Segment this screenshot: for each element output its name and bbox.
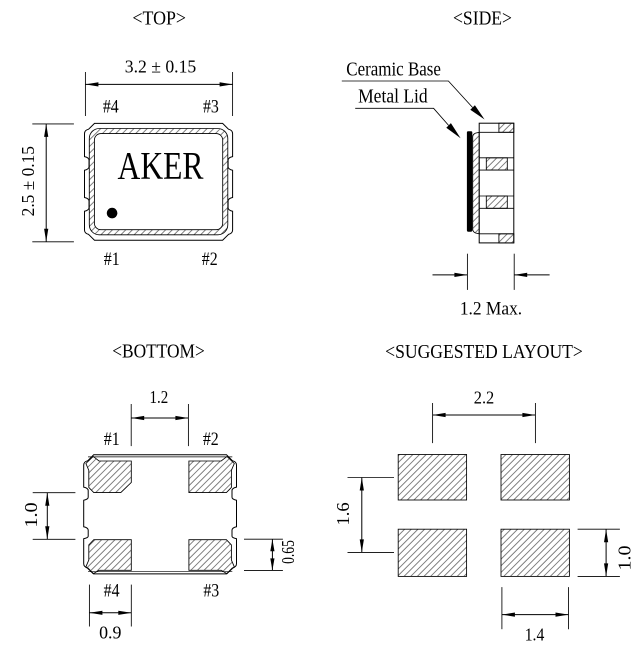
svg-text:1.4: 1.4 [525, 624, 545, 644]
svg-text:<TOP>: <TOP> [132, 8, 186, 30]
svg-text:1.0: 1.0 [614, 545, 634, 570]
svg-text:1.0: 1.0 [21, 502, 41, 528]
svg-text:#2: #2 [202, 249, 218, 270]
svg-text:#4: #4 [103, 97, 119, 118]
svg-text:<BOTTOM>: <BOTTOM> [112, 341, 205, 363]
svg-text:2.2: 2.2 [474, 388, 495, 408]
svg-text:#3: #3 [203, 97, 219, 118]
svg-text:Metal Lid: Metal Lid [358, 86, 428, 107]
svg-text:Ceramic Base: Ceramic Base [346, 60, 441, 81]
svg-text:#1: #1 [104, 249, 120, 270]
svg-text:1.2 Max.: 1.2 Max. [460, 299, 522, 320]
svg-text:#1: #1 [104, 429, 120, 450]
svg-text:0.65: 0.65 [278, 540, 298, 564]
svg-text:0.9: 0.9 [99, 623, 122, 643]
svg-text:#3: #3 [203, 581, 219, 602]
svg-text:2.5 ± 0.15: 2.5 ± 0.15 [18, 146, 38, 216]
svg-text:3.2 ± 0.15: 3.2 ± 0.15 [125, 56, 197, 76]
svg-text:<SIDE>: <SIDE> [453, 8, 512, 30]
svg-text:<SUGGESTED LAYOUT>: <SUGGESTED LAYOUT> [385, 341, 583, 363]
svg-text:#4: #4 [104, 581, 120, 602]
svg-text:1.6: 1.6 [333, 502, 353, 525]
svg-text:AKER: AKER [118, 144, 205, 188]
svg-text:#2: #2 [203, 429, 219, 450]
svg-text:1.2: 1.2 [150, 387, 169, 407]
